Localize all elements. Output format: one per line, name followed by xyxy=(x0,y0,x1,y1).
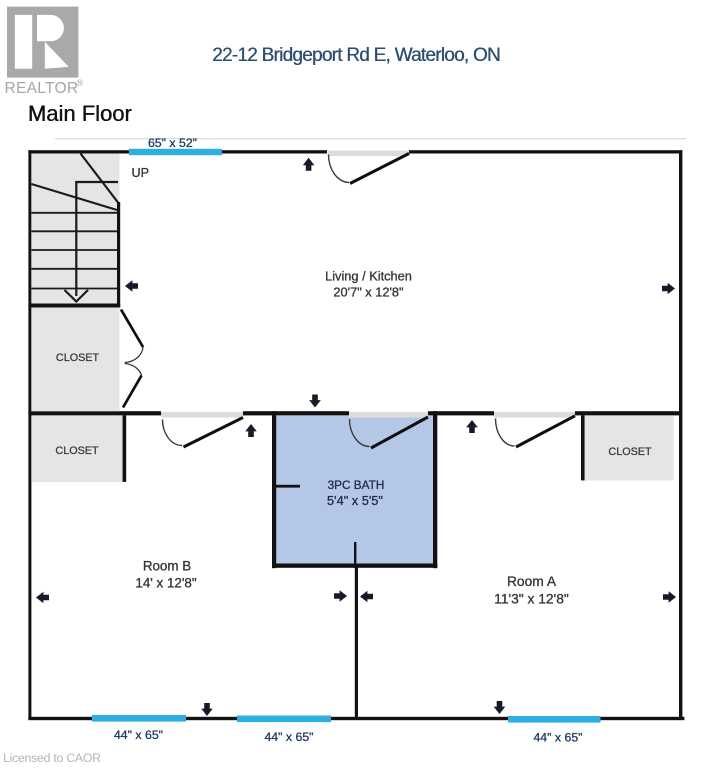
svg-text:3PC BATH: 3PC BATH xyxy=(328,478,385,492)
svg-text:44" x 65": 44" x 65" xyxy=(114,728,163,742)
svg-text:CLOSET: CLOSET xyxy=(55,445,99,457)
svg-text:UP: UP xyxy=(132,166,150,180)
svg-text:14' x 12'8": 14' x 12'8" xyxy=(135,576,196,591)
svg-text:44" x 65": 44" x 65" xyxy=(533,731,582,745)
svg-text:Room B: Room B xyxy=(143,559,191,574)
svg-text:20'7" x 12'8": 20'7" x 12'8" xyxy=(333,285,403,300)
svg-text:65" x 52": 65" x 52" xyxy=(148,136,197,150)
svg-text:5'4" x 5'5": 5'4" x 5'5" xyxy=(327,493,383,508)
svg-text:CLOSET: CLOSET xyxy=(56,352,100,364)
svg-text:Room A: Room A xyxy=(507,574,557,589)
svg-text:11'3" x 12'8": 11'3" x 12'8" xyxy=(494,592,569,607)
svg-text:CLOSET: CLOSET xyxy=(608,446,652,458)
svg-text:Living / Kitchen: Living / Kitchen xyxy=(325,269,412,284)
svg-text:44" x 65": 44" x 65" xyxy=(264,730,313,744)
